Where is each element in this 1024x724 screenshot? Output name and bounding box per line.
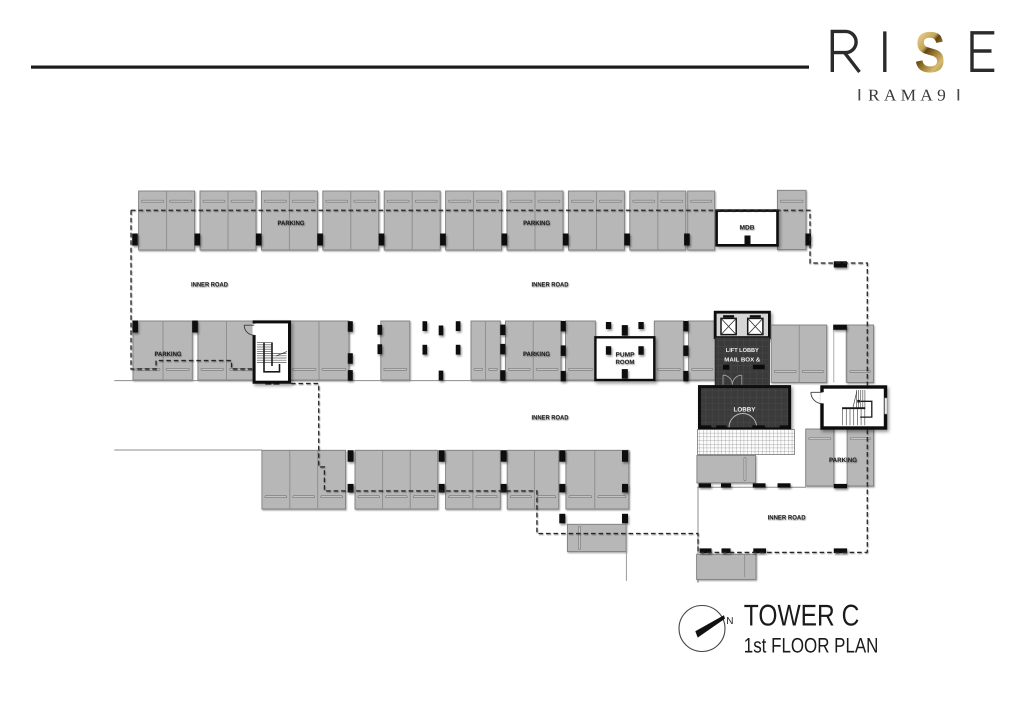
svg-text:MDB: MDB: [740, 225, 755, 232]
svg-text:PARKING: PARKING: [523, 220, 550, 227]
svg-text:PARKING: PARKING: [829, 457, 857, 464]
svg-text:N: N: [726, 616, 733, 627]
svg-text:PARKING: PARKING: [155, 351, 182, 358]
svg-text:1st FLOOR PLAN: 1st FLOOR PLAN: [744, 634, 879, 657]
svg-text:INNER ROAD: INNER ROAD: [191, 282, 228, 289]
svg-text:S: S: [915, 21, 946, 85]
svg-text:TOWER C: TOWER C: [744, 600, 860, 633]
svg-text:LIFT LOBBY: LIFT LOBBY: [726, 347, 759, 354]
svg-text:LOBBY: LOBBY: [734, 407, 757, 414]
svg-text:MAIL BOX &: MAIL BOX &: [724, 356, 761, 363]
svg-text:RAMA9: RAMA9: [868, 86, 950, 105]
svg-text:PARKING: PARKING: [523, 351, 550, 358]
svg-text:PARKING: PARKING: [278, 220, 305, 227]
svg-text:INNER ROAD: INNER ROAD: [532, 414, 569, 421]
svg-text:INNER ROAD: INNER ROAD: [768, 515, 806, 522]
svg-text:INNER ROAD: INNER ROAD: [532, 282, 569, 289]
svg-text:PUMP: PUMP: [616, 352, 635, 359]
svg-text:ROOM: ROOM: [616, 359, 635, 366]
